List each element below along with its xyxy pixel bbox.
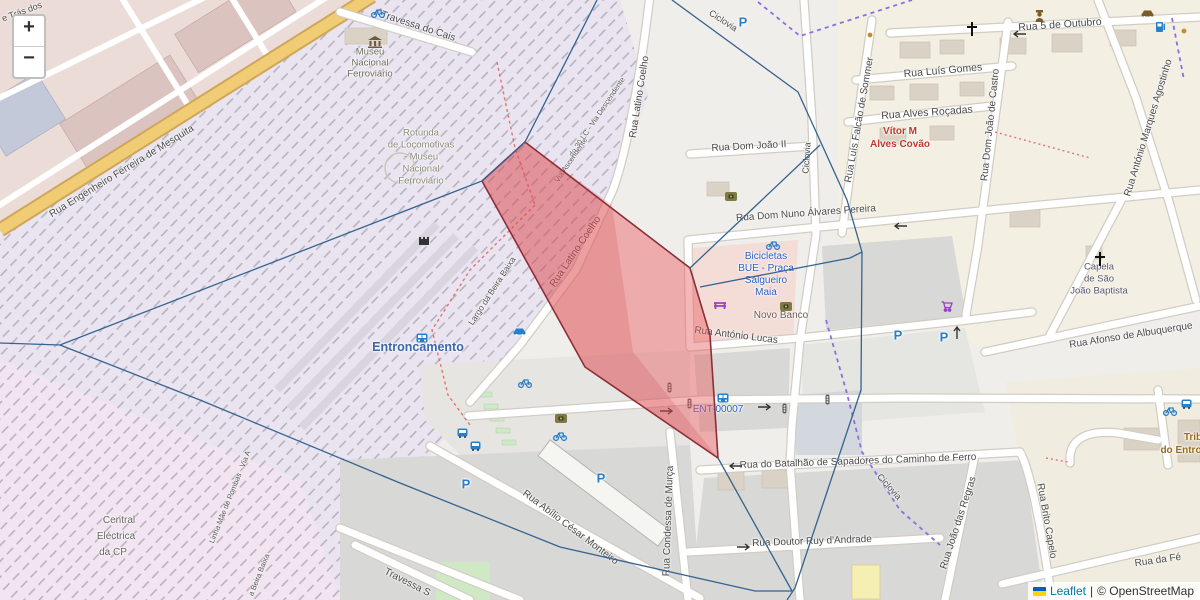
leaflet-link[interactable]: Leaflet	[1050, 584, 1086, 598]
zoom-out-button[interactable]: −	[14, 47, 44, 77]
osm-credit[interactable]: © OpenStreetMap	[1097, 584, 1194, 598]
base-map-art	[0, 0, 1200, 600]
zoom-control: + −	[12, 14, 46, 79]
leaflet-map-canvas[interactable]: e Trás dosTravessa do CaisMuseuNacionalF…	[0, 0, 1200, 600]
zoom-in-button[interactable]: +	[14, 16, 44, 47]
attribution-bar: Leaflet | © OpenStreetMap	[1028, 582, 1200, 600]
ukraine-flag-icon	[1033, 587, 1046, 596]
attribution-separator: |	[1090, 584, 1093, 598]
